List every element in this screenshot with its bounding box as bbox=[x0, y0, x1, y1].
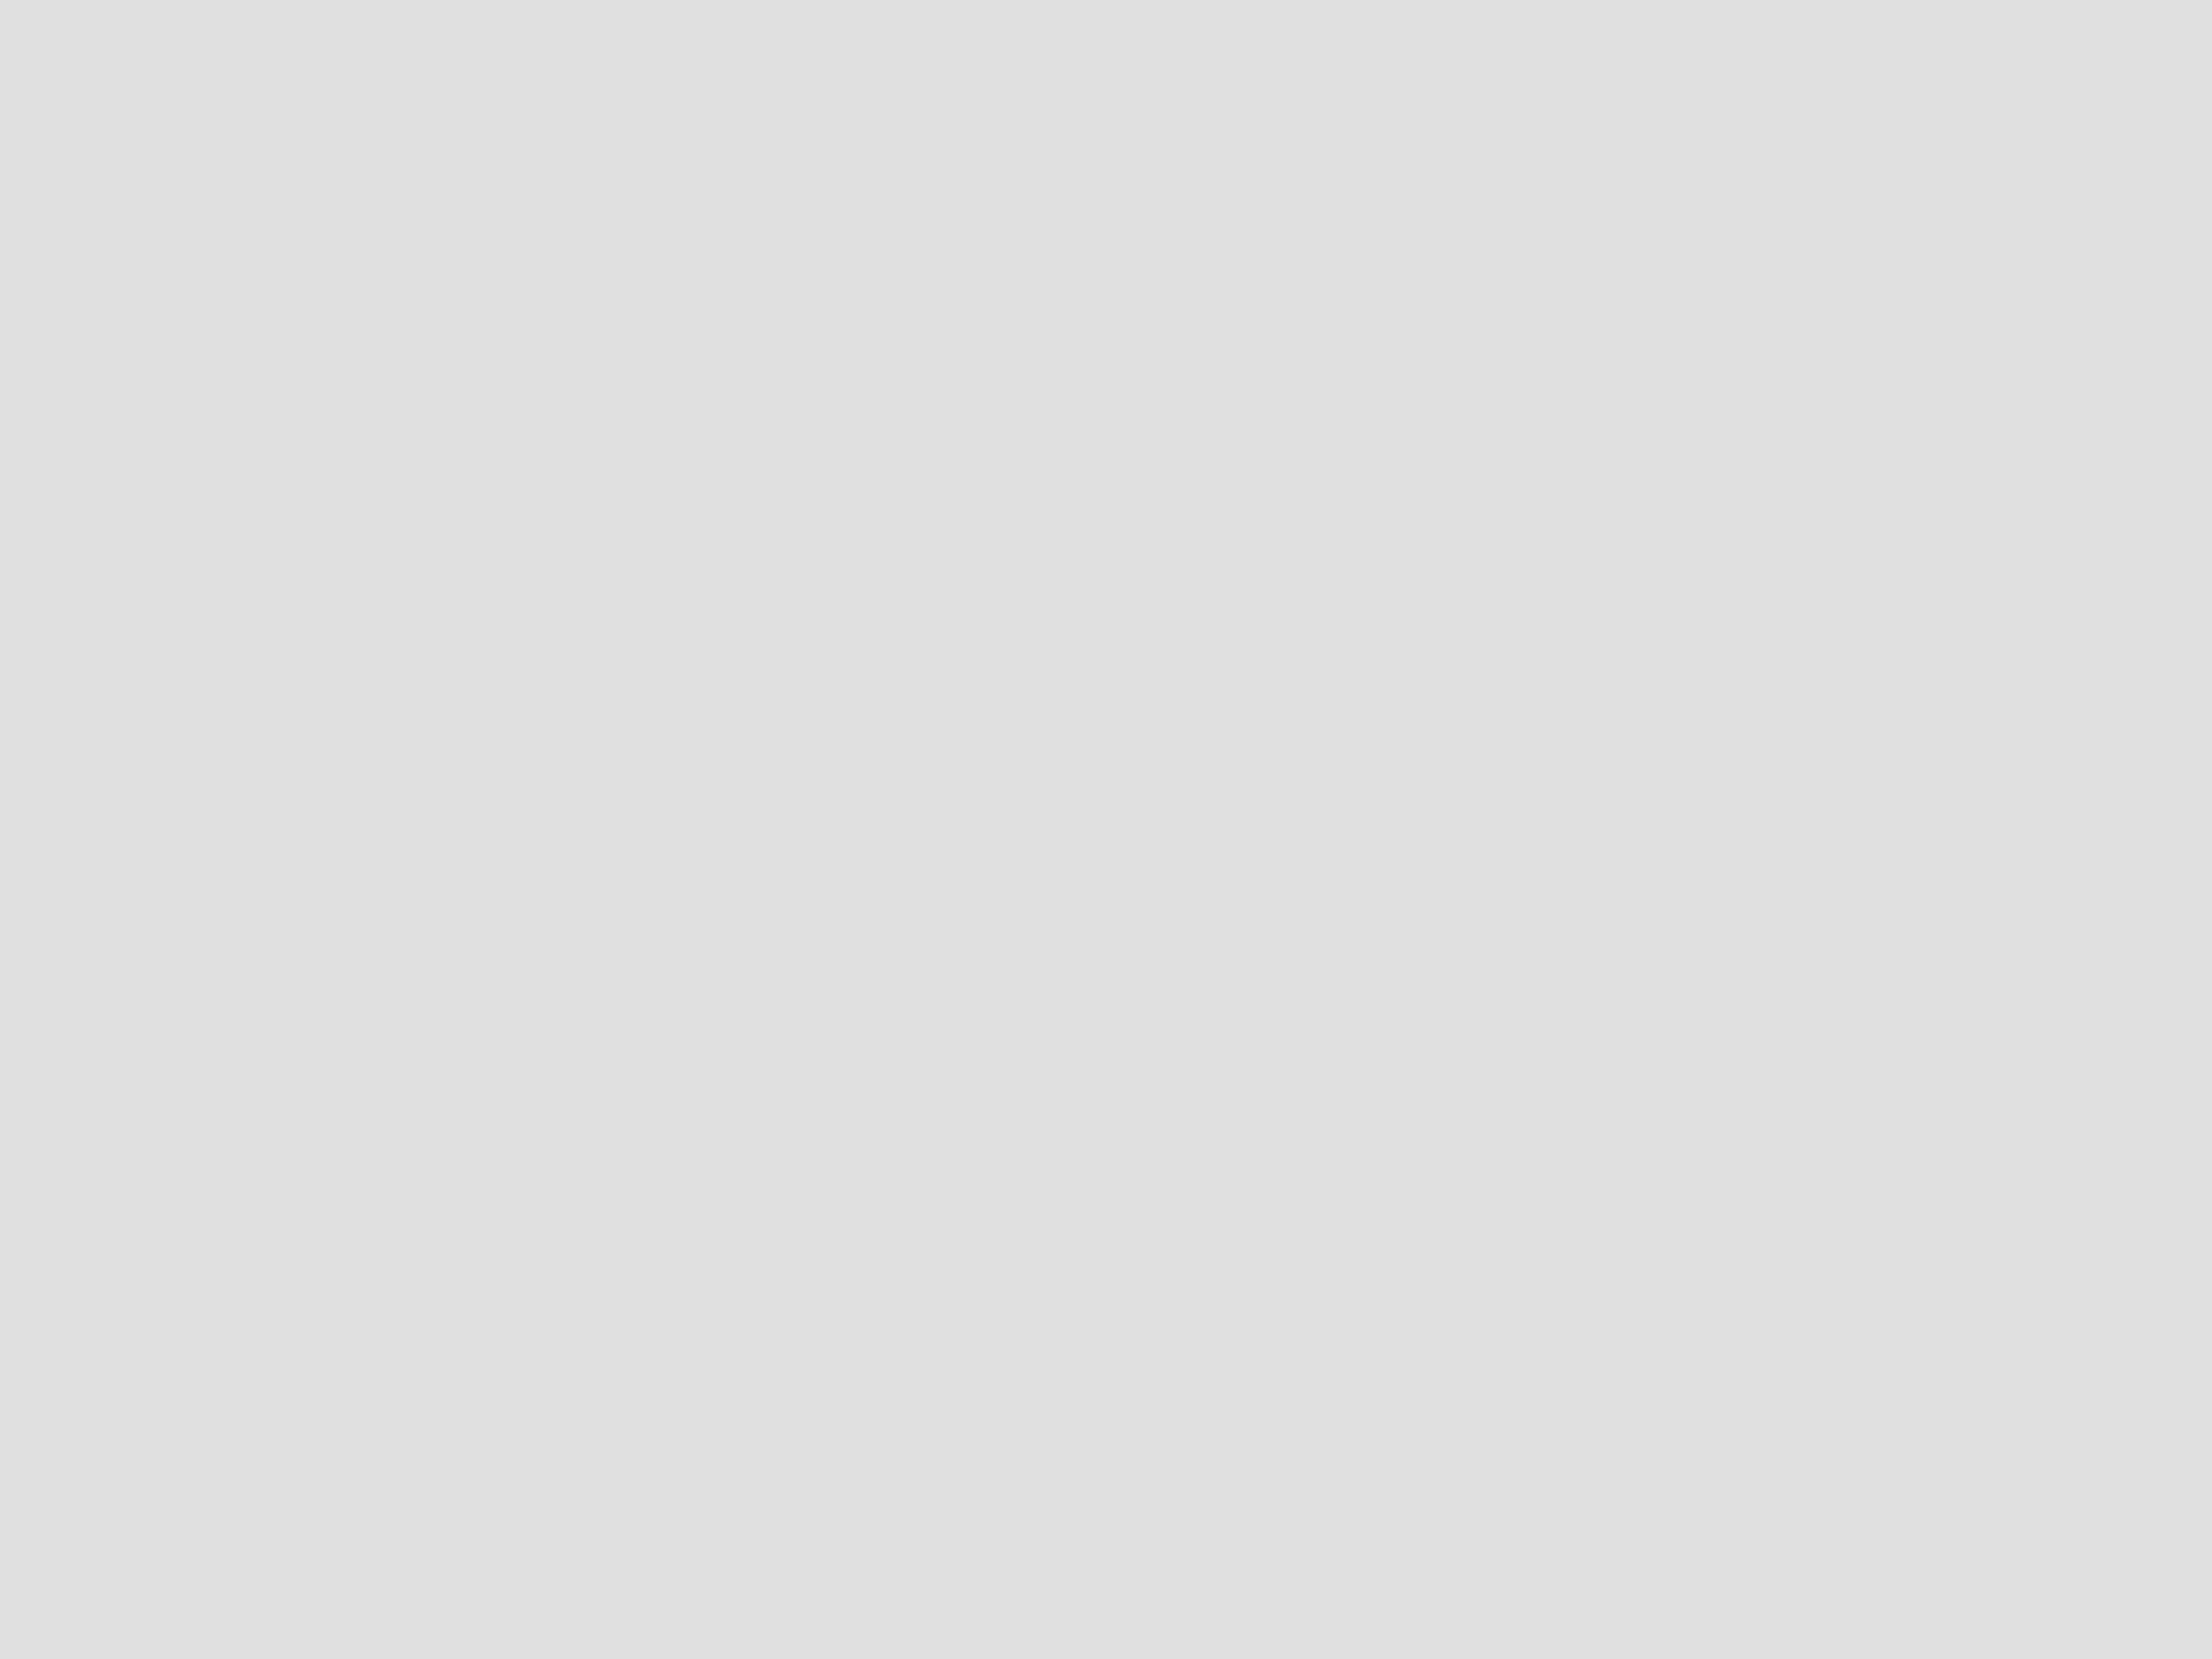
apartment-floorplan-3d bbox=[0, 0, 2212, 1659]
scene bbox=[0, 0, 2212, 1659]
floorplan-canvas bbox=[0, 0, 2212, 1659]
background bbox=[0, 0, 2212, 1659]
